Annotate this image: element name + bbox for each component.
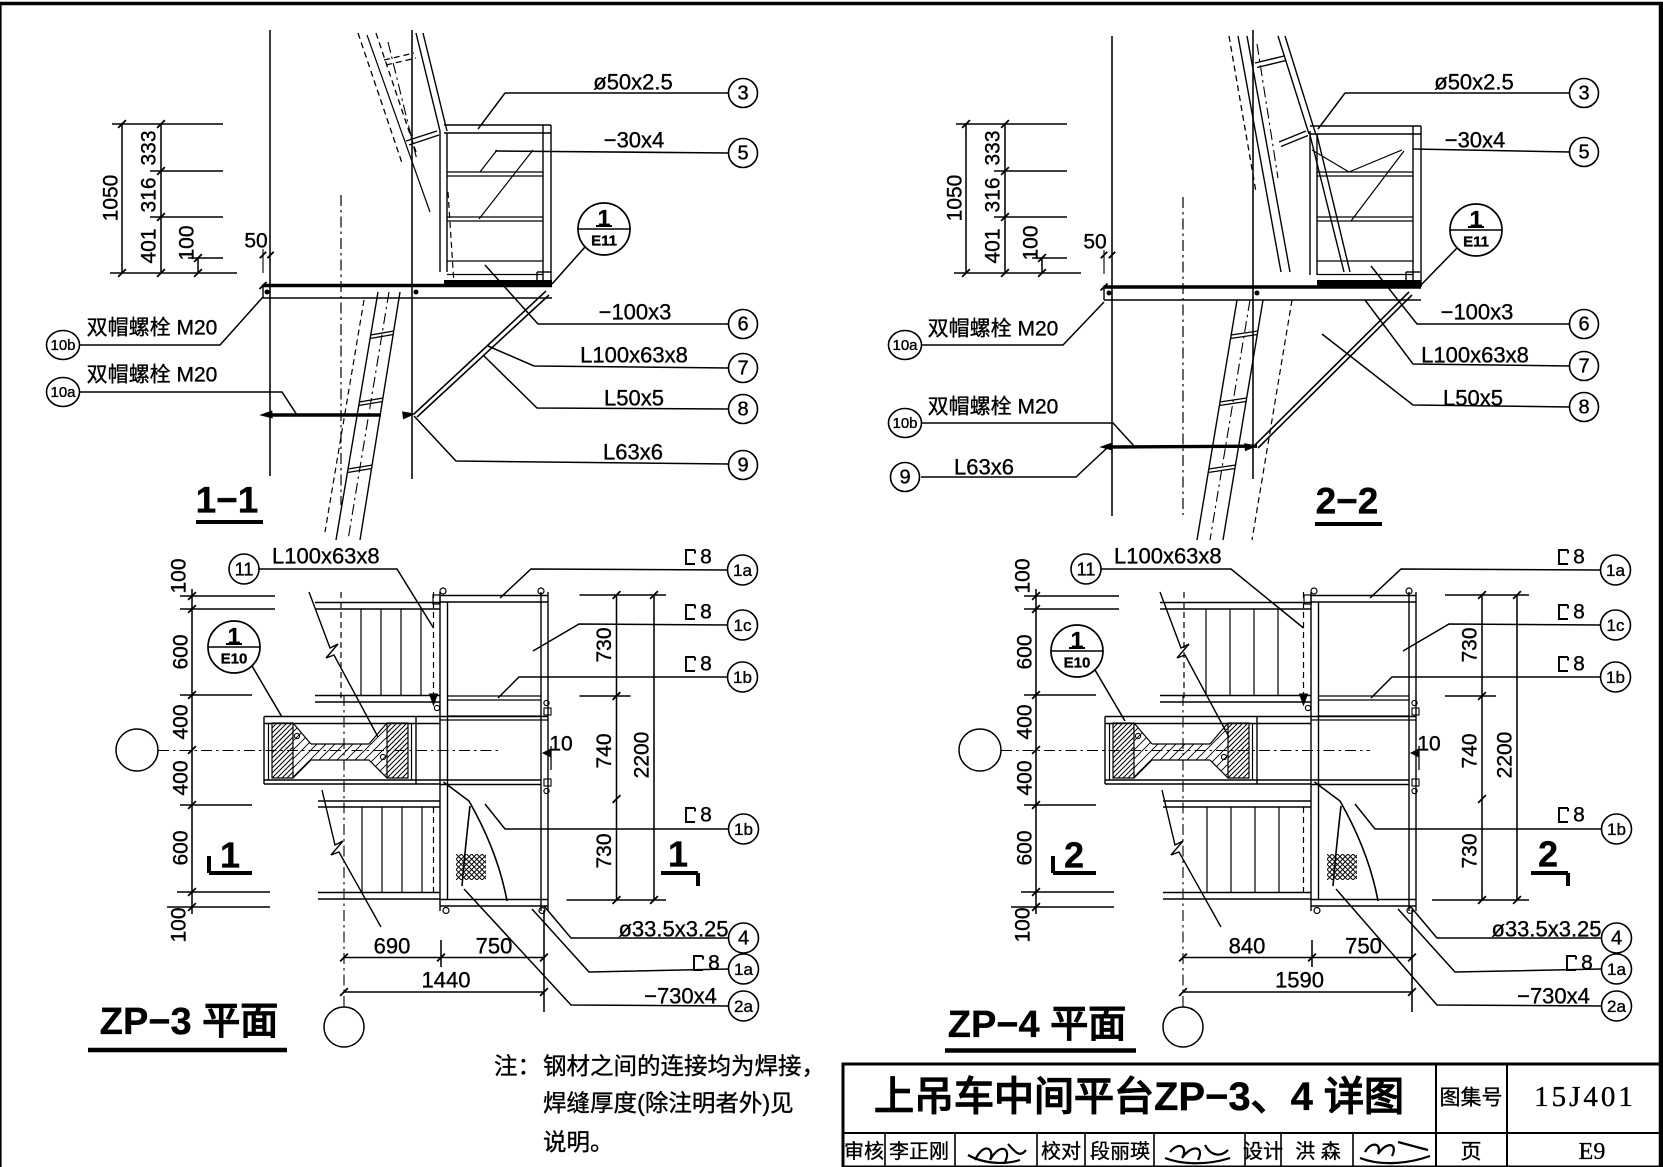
svg-text:10b: 10b [892,415,917,432]
svg-text:2200: 2200 [631,732,654,779]
svg-text:校对: 校对 [1041,1140,1081,1163]
svg-text:3: 3 [737,83,748,105]
svg-text:E11: E11 [1463,234,1489,251]
svg-text:4: 4 [1611,928,1622,950]
svg-text:100: 100 [1012,907,1035,942]
svg-text:740: 740 [1459,733,1482,768]
svg-text:ø50x2.5: ø50x2.5 [1434,70,1514,95]
svg-text:5: 5 [737,143,748,165]
svg-text:8: 8 [737,399,748,421]
svg-text:333: 333 [982,130,1005,165]
svg-text:8: 8 [1573,653,1585,676]
svg-text:11: 11 [1077,560,1096,580]
svg-text:1a: 1a [1606,561,1625,580]
svg-text:ZP−4 平面: ZP−4 平面 [948,1004,1126,1046]
svg-text:100: 100 [1020,225,1043,260]
svg-text:100: 100 [1012,558,1035,593]
svg-text:400: 400 [1014,760,1037,795]
svg-text:730: 730 [1459,833,1482,868]
svg-text:8: 8 [1573,804,1585,827]
svg-text:8: 8 [708,952,720,975]
svg-text:100: 100 [176,225,199,260]
svg-text:E10: E10 [221,651,248,668]
svg-text:2a: 2a [734,997,753,1016]
svg-text:750: 750 [1345,934,1382,959]
svg-text:5: 5 [1578,142,1589,164]
svg-text:316: 316 [138,177,161,212]
svg-text:8: 8 [700,653,712,676]
svg-text:400: 400 [170,704,193,739]
svg-text:E9: E9 [1579,1139,1606,1165]
svg-text:10: 10 [1417,733,1440,756]
svg-text:50: 50 [244,230,267,253]
svg-text:1590: 1590 [1275,968,1324,993]
svg-text:11: 11 [235,560,254,580]
svg-text:审核: 审核 [844,1140,884,1163]
svg-text:−30x4: −30x4 [1445,128,1506,153]
svg-text:1: 1 [1071,627,1084,653]
svg-text:双帽螺栓 M20: 双帽螺栓 M20 [87,364,218,387]
svg-text:8: 8 [1578,397,1589,419]
svg-text:600: 600 [1014,634,1037,669]
svg-text:1a: 1a [1607,960,1626,979]
svg-text:1a: 1a [733,561,752,580]
svg-text:600: 600 [170,634,193,669]
svg-text:8: 8 [700,804,712,827]
svg-text:50: 50 [1083,231,1106,254]
svg-text:15J401: 15J401 [1534,1081,1636,1113]
svg-text:−30x4: −30x4 [604,128,665,153]
svg-text:1b: 1b [734,820,753,839]
svg-text:1050: 1050 [944,175,967,222]
svg-text:说明。: 说明。 [543,1129,614,1155]
svg-text:316: 316 [982,177,1005,212]
svg-text:双帽螺栓 M20: 双帽螺栓 M20 [87,317,218,340]
svg-text:8: 8 [700,601,712,624]
svg-text:2−2: 2−2 [1316,481,1379,522]
svg-text:L63x6: L63x6 [954,455,1014,480]
svg-text:3: 3 [1578,83,1589,105]
svg-text:L100x63x8: L100x63x8 [272,544,380,569]
svg-text:840: 840 [1229,934,1266,959]
svg-text:1050: 1050 [100,175,123,222]
svg-text:6: 6 [1578,314,1589,336]
svg-text:9: 9 [899,467,910,489]
svg-text:2: 2 [1064,835,1084,876]
svg-text:1−1: 1−1 [196,480,259,521]
svg-text:洪 森: 洪 森 [1295,1140,1341,1163]
svg-text:9: 9 [737,455,748,477]
svg-text:−100x3: −100x3 [599,300,672,325]
svg-text:100: 100 [168,558,191,593]
svg-text:730: 730 [593,833,616,868]
svg-text:1a: 1a [734,960,753,979]
svg-text:10: 10 [549,733,572,756]
svg-text:1c: 1c [734,616,752,635]
svg-text:E11: E11 [591,233,617,250]
svg-text:双帽螺栓 M20: 双帽螺栓 M20 [928,318,1059,341]
svg-text:10a: 10a [892,337,918,354]
svg-text:1c: 1c [1607,616,1625,635]
svg-text:L100x63x8: L100x63x8 [1114,544,1222,569]
svg-text:8: 8 [700,546,712,569]
svg-text:401: 401 [138,228,161,263]
svg-text:−100x3: −100x3 [1441,300,1514,325]
svg-text:730: 730 [593,627,616,662]
svg-text:7: 7 [1578,356,1589,378]
svg-text:钢材之间的连接均为焊接，: 钢材之间的连接均为焊接， [543,1053,825,1079]
svg-text:2: 2 [1538,834,1558,875]
svg-text:1: 1 [228,623,241,649]
svg-text:6: 6 [737,314,748,336]
svg-text:设计: 设计 [1243,1140,1283,1163]
svg-text:L50x5: L50x5 [604,386,664,411]
svg-text:页: 页 [1461,1141,1482,1164]
svg-text:ø50x2.5: ø50x2.5 [593,70,673,95]
svg-text:1: 1 [1470,206,1483,232]
svg-text:双帽螺栓 M20: 双帽螺栓 M20 [928,396,1059,419]
svg-text:740: 740 [593,733,616,768]
svg-text:L63x6: L63x6 [603,440,663,465]
svg-text:400: 400 [1014,704,1037,739]
svg-text:8: 8 [1573,601,1585,624]
svg-text:750: 750 [476,934,513,959]
svg-text:2200: 2200 [1494,732,1517,779]
svg-text:10b: 10b [50,337,75,354]
svg-text:690: 690 [374,934,411,959]
svg-text:400: 400 [170,760,193,795]
svg-text:1: 1 [220,835,240,876]
svg-text:ZP−3 平面: ZP−3 平面 [100,1001,278,1043]
svg-text:2a: 2a [1607,997,1626,1016]
svg-text:730: 730 [1459,627,1482,662]
svg-text:段丽瑛: 段丽瑛 [1090,1140,1150,1163]
svg-text:7: 7 [737,358,748,380]
svg-text:L100x63x8: L100x63x8 [580,343,688,368]
svg-text:1b: 1b [1607,820,1626,839]
svg-text:−730x4: −730x4 [1517,984,1590,1009]
svg-text:600: 600 [170,830,193,865]
svg-text:8: 8 [1573,546,1585,569]
svg-text:上吊车中间平台ZP−3、4 详图: 上吊车中间平台ZP−3、4 详图 [874,1075,1404,1119]
svg-text:10a: 10a [50,384,76,401]
svg-text:注：: 注： [494,1053,541,1079]
svg-text:401: 401 [982,228,1005,263]
svg-text:4: 4 [738,928,749,950]
svg-text:1b: 1b [733,668,752,687]
svg-text:1: 1 [668,834,688,875]
svg-text:1: 1 [598,205,611,231]
svg-text:600: 600 [1014,830,1037,865]
svg-text:333: 333 [138,130,161,165]
svg-text:E10: E10 [1064,655,1091,672]
svg-text:100: 100 [168,907,191,942]
svg-text:−730x4: −730x4 [644,984,717,1009]
svg-text:焊缝厚度(除注明者外)见: 焊缝厚度(除注明者外)见 [543,1090,794,1116]
svg-text:1b: 1b [1606,668,1625,687]
svg-text:李正刚: 李正刚 [889,1140,949,1163]
svg-text:1440: 1440 [422,968,471,993]
svg-text:图集号: 图集号 [1440,1087,1503,1110]
svg-text:8: 8 [1581,952,1593,975]
